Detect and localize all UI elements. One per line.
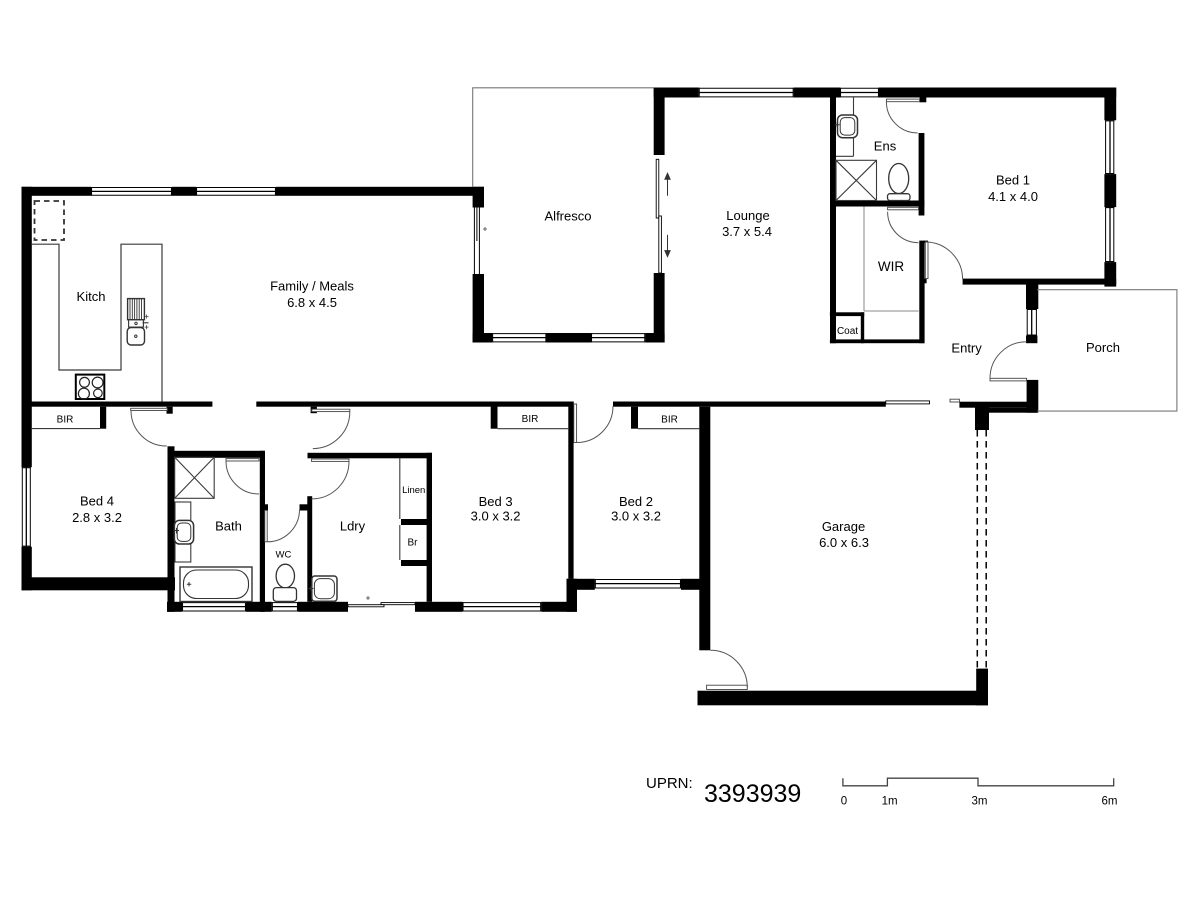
svg-text:3.0 x 3.2: 3.0 x 3.2 — [611, 508, 661, 523]
svg-text:Ens: Ens — [874, 138, 897, 153]
svg-text:Kitch: Kitch — [77, 289, 106, 304]
svg-text:3.0 x 3.2: 3.0 x 3.2 — [471, 508, 521, 523]
svg-text:UPRN:: UPRN: — [646, 775, 693, 792]
svg-text:3m: 3m — [972, 796, 988, 808]
svg-text:BIR: BIR — [661, 414, 678, 425]
svg-text:Alfresco: Alfresco — [545, 208, 592, 223]
svg-text:Entry: Entry — [951, 340, 982, 355]
svg-text:Bed 3: Bed 3 — [479, 494, 513, 509]
svg-text:BIR: BIR — [522, 414, 539, 425]
svg-text:BIR: BIR — [57, 415, 74, 426]
svg-text:Bed 4: Bed 4 — [80, 494, 114, 509]
svg-text:6.8 x 4.5: 6.8 x 4.5 — [287, 295, 337, 310]
svg-text:Br: Br — [408, 538, 419, 549]
svg-text:3.7 x 5.4: 3.7 x 5.4 — [722, 224, 772, 239]
svg-text:Bath: Bath — [215, 518, 242, 533]
svg-text:WIR: WIR — [878, 259, 904, 274]
svg-text:WC: WC — [275, 549, 291, 560]
svg-text:2.8 x 3.2: 2.8 x 3.2 — [72, 510, 122, 525]
svg-text:3393939: 3393939 — [704, 780, 801, 808]
svg-text:Porch: Porch — [1086, 340, 1120, 355]
svg-text:6.0 x 6.3: 6.0 x 6.3 — [819, 535, 869, 550]
svg-text:6m: 6m — [1102, 796, 1118, 808]
svg-text:Linen: Linen — [402, 485, 425, 496]
svg-text:Bed 2: Bed 2 — [619, 494, 653, 509]
svg-text:Coat: Coat — [837, 326, 858, 337]
svg-text:0: 0 — [841, 796, 847, 808]
svg-text:Bed 1: Bed 1 — [996, 172, 1030, 187]
svg-text:4.1 x 4.0: 4.1 x 4.0 — [988, 189, 1038, 204]
svg-text:Garage: Garage — [822, 519, 865, 534]
svg-text:Lounge: Lounge — [726, 208, 769, 223]
svg-text:Family / Meals: Family / Meals — [270, 278, 354, 293]
svg-text:Ldry: Ldry — [340, 518, 366, 533]
svg-text:1m: 1m — [882, 796, 898, 808]
